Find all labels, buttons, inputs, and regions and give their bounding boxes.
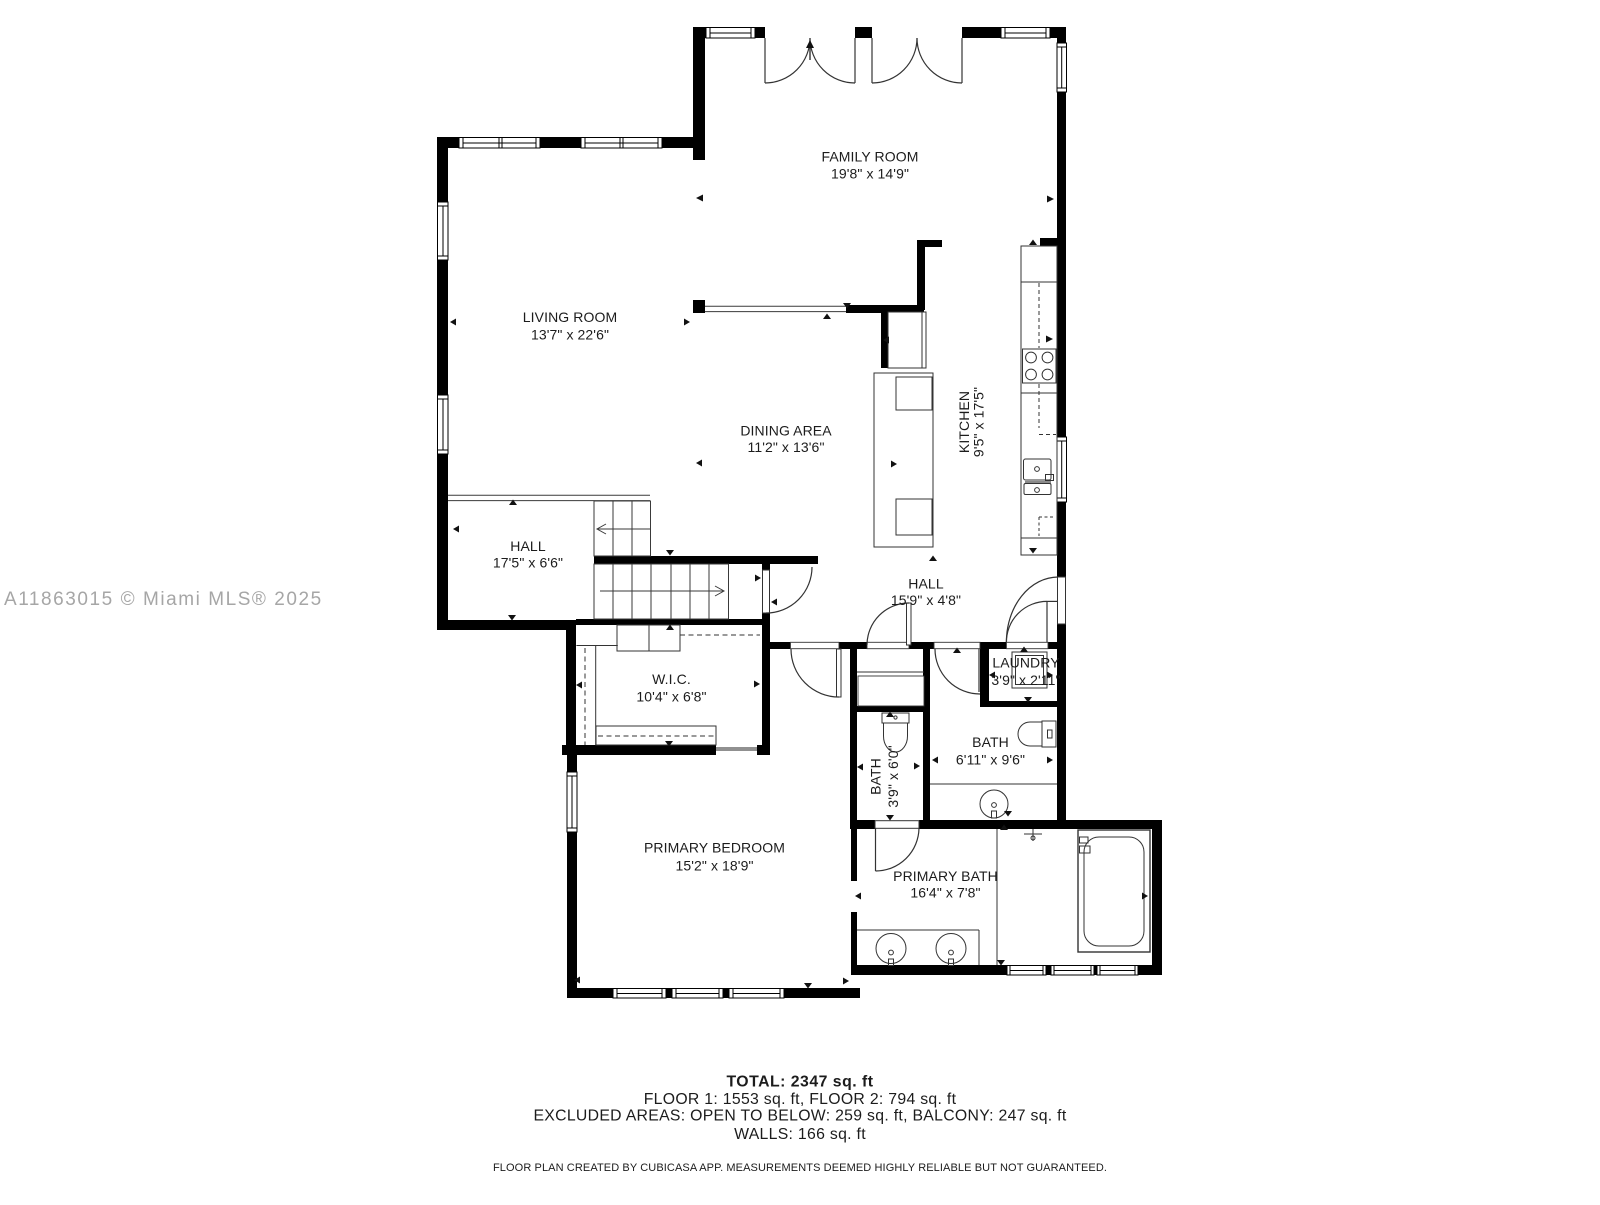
svg-text:EXCLUDED AREAS: OPEN TO BELOW:: EXCLUDED AREAS: OPEN TO BELOW: 259 sq. f…	[533, 1108, 1066, 1125]
svg-text:FLOOR 1: 1553 sq. ft, FLOOR 2:: FLOOR 1: 1553 sq. ft, FLOOR 2: 794 sq. f…	[644, 1091, 957, 1108]
svg-text:W.I.C.: W.I.C.	[652, 671, 691, 687]
svg-text:6'11" x 9'6": 6'11" x 9'6"	[956, 752, 1025, 768]
svg-text:DINING AREA: DINING AREA	[740, 423, 832, 439]
svg-text:FLOOR PLAN CREATED BY CUBICASA: FLOOR PLAN CREATED BY CUBICASA APP. MEAS…	[493, 1162, 1107, 1174]
svg-text:11'2" x 13'6": 11'2" x 13'6"	[747, 439, 824, 455]
svg-text:BATH: BATH	[867, 758, 883, 795]
svg-text:WALLS: 166 sq. ft: WALLS: 166 sq. ft	[734, 1126, 866, 1143]
svg-text:17'5" x 6'6": 17'5" x 6'6"	[493, 555, 563, 571]
svg-text:TOTAL: 2347 sq. ft: TOTAL: 2347 sq. ft	[726, 1074, 873, 1091]
svg-text:9'5" x 17'5": 9'5" x 17'5"	[971, 387, 987, 457]
svg-text:LIVING ROOM: LIVING ROOM	[523, 309, 617, 325]
svg-text:15'9" x 4'8": 15'9" x 4'8"	[891, 592, 961, 608]
svg-text:19'8" x 14'9": 19'8" x 14'9"	[831, 166, 909, 182]
svg-text:HALL: HALL	[510, 538, 546, 554]
svg-text:PRIMARY BEDROOM: PRIMARY BEDROOM	[644, 840, 785, 856]
svg-text:LAUNDRY: LAUNDRY	[992, 655, 1060, 671]
svg-text:HALL: HALL	[908, 576, 944, 592]
svg-text:BATH: BATH	[972, 734, 1009, 750]
svg-text:FAMILY ROOM: FAMILY ROOM	[821, 149, 918, 165]
svg-text:16'4" x 7'8": 16'4" x 7'8"	[910, 885, 980, 901]
svg-text:PRIMARY BATH: PRIMARY BATH	[893, 868, 998, 884]
svg-text:15'2" x 18'9": 15'2" x 18'9"	[675, 858, 753, 874]
svg-text:13'7" x 22'6": 13'7" x 22'6"	[531, 327, 609, 343]
svg-text:10'4" x 6'8": 10'4" x 6'8"	[636, 689, 706, 705]
svg-text:3'9" x 6'0": 3'9" x 6'0"	[885, 745, 901, 807]
svg-text:A11863015 © Miami MLS® 2025: A11863015 © Miami MLS® 2025	[4, 589, 323, 610]
